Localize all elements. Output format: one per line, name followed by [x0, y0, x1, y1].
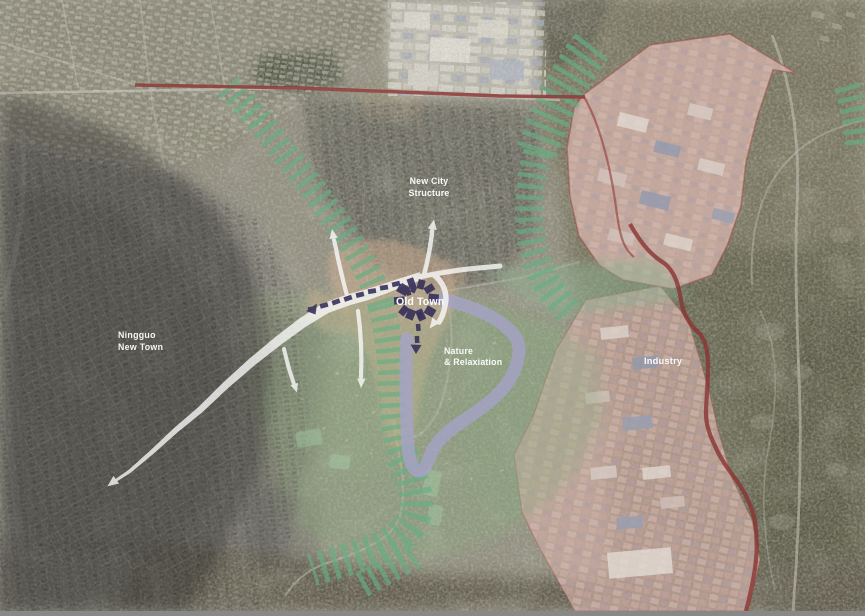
svg-text:& Relaxiation: & Relaxiation	[444, 357, 502, 367]
svg-text:New Town: New Town	[118, 342, 163, 352]
svg-text:Old Town: Old Town	[396, 296, 444, 308]
svg-text:Nature: Nature	[444, 346, 473, 356]
svg-text:Structure: Structure	[409, 188, 450, 198]
svg-text:New City: New City	[410, 176, 449, 186]
svg-text:Ningguo: Ningguo	[118, 330, 156, 340]
svg-text:Industry: Industry	[644, 356, 683, 366]
